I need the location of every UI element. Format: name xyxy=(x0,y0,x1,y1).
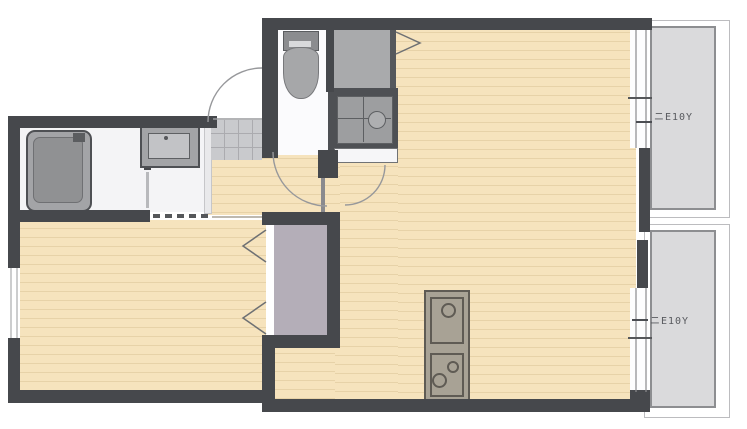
wall-hall-thin xyxy=(321,178,325,214)
wall-washroom-south xyxy=(18,210,150,222)
compact-kitchen-counter-front xyxy=(334,148,398,163)
wall-east-stub-1 xyxy=(639,148,650,232)
washbasin-faucet-icon xyxy=(164,136,168,140)
balcony-bottom-label: ニE10Y xyxy=(650,312,689,327)
wall-closet-south xyxy=(262,335,340,348)
wall-toilet-east xyxy=(326,18,334,92)
wall-south-main xyxy=(262,399,650,412)
wall-west-upper xyxy=(8,116,20,268)
washbasin-sink xyxy=(148,133,190,159)
wall-north-main xyxy=(262,18,652,30)
stove-burner-icon xyxy=(447,361,459,373)
wall-hall-stub xyxy=(318,150,338,178)
balcony-top-label: ニE10Y xyxy=(654,108,693,123)
counter-sink-icon xyxy=(441,303,456,318)
kitchen-sink-bowl xyxy=(368,111,386,129)
east-window-bottom xyxy=(630,288,648,392)
wall-room-divider xyxy=(262,348,275,402)
wall-closet-east xyxy=(327,212,340,348)
floor-plan: ニE10Y ニE10Y xyxy=(0,0,747,429)
east-window-top xyxy=(630,30,648,148)
west-window xyxy=(8,268,20,338)
stove-burner-icon xyxy=(432,373,447,388)
main-room-floor-west xyxy=(330,158,398,402)
bath-faucet-icon xyxy=(73,133,85,142)
wall-toilet-west xyxy=(262,18,278,158)
refrigerator-space-door xyxy=(390,22,396,90)
west-room-floor xyxy=(18,220,266,392)
wall-south-west-room xyxy=(8,390,270,403)
kitchen-divider-v xyxy=(363,96,364,142)
closet xyxy=(274,224,330,336)
wall-north-west-block xyxy=(8,116,217,128)
bathroom-door xyxy=(146,172,149,208)
main-room-floor-southwest xyxy=(275,345,335,402)
entrance-tile xyxy=(211,120,262,160)
bathtub-inner xyxy=(33,137,83,203)
wall-southeast-corner xyxy=(630,390,650,412)
refrigerator-space xyxy=(332,22,390,92)
entrance-door-arc-icon xyxy=(208,68,262,122)
toilet-bowl xyxy=(283,47,319,99)
wall-east-stub-2 xyxy=(637,240,648,288)
